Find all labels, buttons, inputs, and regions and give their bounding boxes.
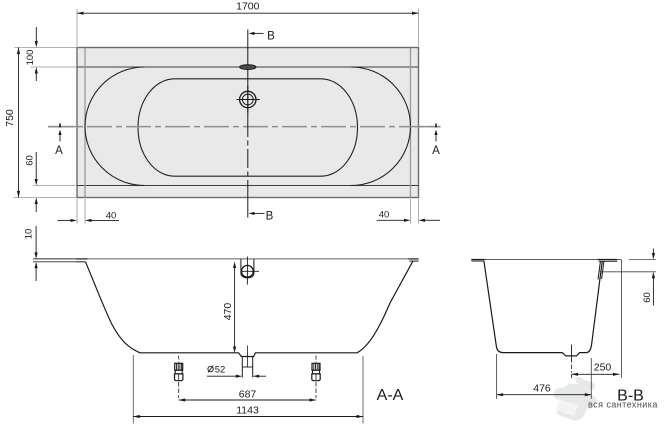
svg-text:1700: 1700	[236, 1, 260, 13]
svg-text:B: B	[266, 211, 274, 223]
svg-text:10: 10	[24, 229, 35, 240]
svg-text:60: 60	[642, 292, 653, 303]
svg-text:40: 40	[106, 210, 117, 221]
svg-text:100: 100	[25, 50, 36, 66]
svg-text:A: A	[432, 145, 440, 157]
svg-text:470: 470	[222, 303, 234, 321]
svg-text:1143: 1143	[236, 405, 259, 417]
svg-text:A-A: A-A	[377, 387, 404, 404]
svg-text:40: 40	[379, 209, 390, 220]
svg-text:60: 60	[25, 155, 36, 166]
svg-text:B: B	[267, 31, 275, 43]
svg-text:A: A	[55, 145, 63, 157]
svg-text:687: 687	[239, 389, 257, 401]
svg-text:476: 476	[533, 383, 551, 395]
svg-text:250: 250	[594, 362, 612, 374]
svg-text:B-B: B-B	[617, 388, 644, 405]
svg-text:750: 750	[4, 109, 16, 127]
svg-text:52: 52	[215, 364, 226, 375]
